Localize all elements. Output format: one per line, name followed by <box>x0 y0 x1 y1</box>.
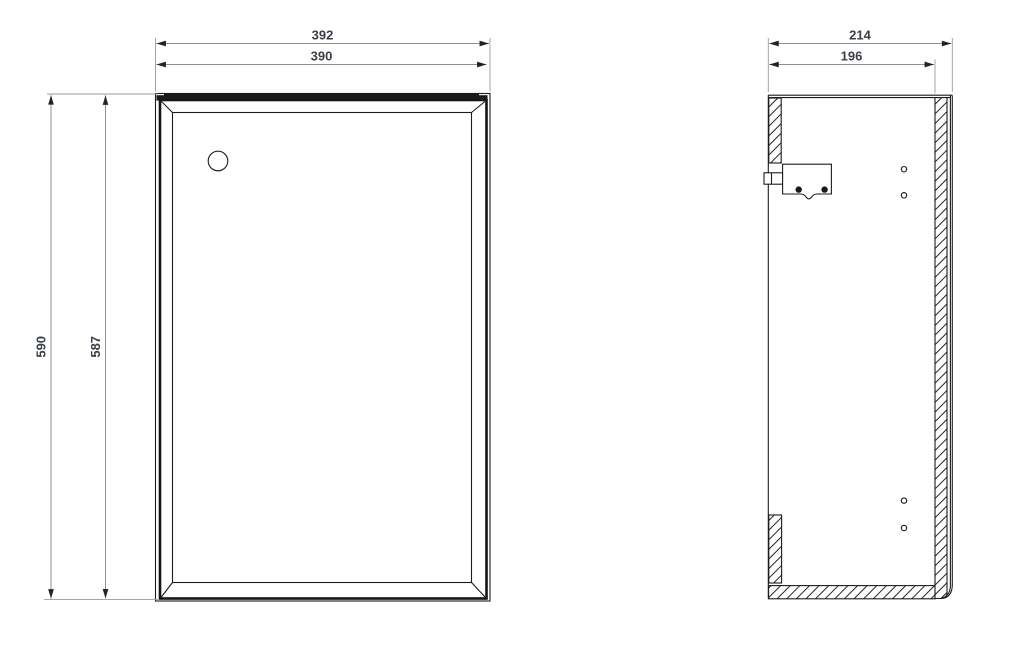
side-hinge-screw-left <box>796 186 802 192</box>
side-wall-rail-bottom <box>769 515 782 583</box>
side-pin-hole-bottom-1 <box>901 498 906 503</box>
front-top-profile-band <box>164 94 479 100</box>
dim-label-depth-outer: 214 <box>849 28 871 43</box>
technical-drawing-page: 392 390 590 587 <box>0 0 1024 653</box>
front-top-profile-cap-left <box>157 95 167 100</box>
side-view-dimensions: 214 196 <box>768 28 952 94</box>
side-hinge-screw-right <box>821 186 827 192</box>
side-pin-hole-bottom-2 <box>901 525 906 530</box>
side-wall-rail-top <box>769 98 781 163</box>
side-pin-hole-top-2 <box>901 193 906 198</box>
side-pin-hole-top-1 <box>901 167 906 172</box>
side-view <box>764 95 952 599</box>
front-cabinet-outline <box>156 94 491 602</box>
side-hinge-body <box>783 164 832 199</box>
front-view <box>156 94 491 602</box>
dim-label-height-inner: 587 <box>88 336 103 358</box>
dim-label-width-outer: 392 <box>312 28 334 43</box>
dim-label-width-inner: 390 <box>311 49 333 64</box>
dim-label-depth-inner: 196 <box>841 49 863 64</box>
technical-drawing-canvas: 392 390 590 587 <box>0 0 1024 653</box>
side-hinge-tab <box>764 173 783 184</box>
front-top-profile-cap-right <box>478 95 488 100</box>
side-bottom-panel <box>769 586 936 599</box>
dim-label-height-outer: 590 <box>34 336 49 358</box>
side-door-panel <box>935 98 947 599</box>
